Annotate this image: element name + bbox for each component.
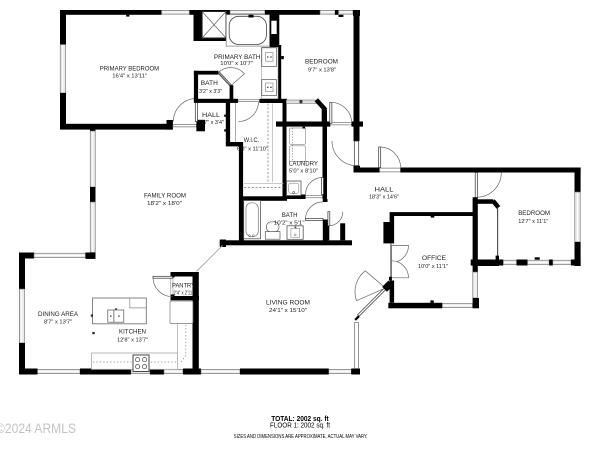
svg-text:BATH: BATH bbox=[201, 80, 218, 87]
svg-text:PRIMARY BATH: PRIMARY BATH bbox=[214, 54, 261, 61]
svg-text:FLOOR 1: 2002 sq. ft: FLOOR 1: 2002 sq. ft bbox=[270, 423, 330, 430]
svg-text:HALL: HALL bbox=[202, 112, 220, 119]
svg-text:9'7" x 13'8": 9'7" x 13'8" bbox=[308, 68, 336, 74]
svg-text:LAUNDRY: LAUNDRY bbox=[289, 160, 319, 167]
svg-text:8'7" x 13'7": 8'7" x 13'7" bbox=[44, 320, 72, 326]
svg-text:KITCHEN: KITCHEN bbox=[119, 329, 146, 336]
svg-text:3'2" x 3'3": 3'2" x 3'3" bbox=[199, 89, 222, 95]
svg-text:18'2" x 18'0": 18'2" x 18'0" bbox=[147, 201, 182, 207]
svg-text:5'0" x 8'10": 5'0" x 8'10" bbox=[289, 168, 318, 174]
svg-text:FAMILY ROOM: FAMILY ROOM bbox=[144, 193, 186, 200]
svg-text:OFFICE: OFFICE bbox=[422, 255, 447, 262]
svg-text:16'4" x 13'11": 16'4" x 13'11" bbox=[112, 73, 147, 79]
svg-text:18'3" x 14'6": 18'3" x 14'6" bbox=[369, 195, 399, 201]
svg-text:PANTRY: PANTRY bbox=[172, 283, 196, 290]
svg-text:BATH: BATH bbox=[282, 212, 298, 219]
svg-text:24'1" x 15'10": 24'1" x 15'10" bbox=[269, 308, 307, 314]
svg-text:W.I.C.: W.I.C. bbox=[244, 137, 260, 144]
svg-text:BEDROOM: BEDROOM bbox=[518, 210, 550, 217]
svg-text:3'7" x 3'4": 3'7" x 3'4" bbox=[200, 120, 224, 126]
svg-text:6'0" x 11'10": 6'0" x 11'10" bbox=[237, 147, 268, 153]
svg-text:12'8" x 13'7": 12'8" x 13'7" bbox=[117, 338, 148, 344]
svg-text:BEDROOM: BEDROOM bbox=[305, 59, 338, 66]
svg-text:PRIMARY BEDROOM: PRIMARY BEDROOM bbox=[100, 66, 159, 73]
svg-text:©2024 ARMLS: ©2024 ARMLS bbox=[0, 420, 76, 436]
svg-text:2'4" x 2'11": 2'4" x 2'11" bbox=[173, 291, 193, 297]
svg-text:12'7" x 11'1": 12'7" x 11'1" bbox=[518, 219, 548, 225]
svg-text:SIZES AND DIMENSIONS ARE APPRO: SIZES AND DIMENSIONS ARE APPROXIMATE, AC… bbox=[234, 434, 368, 440]
svg-text:10'0" x 10'7": 10'0" x 10'7" bbox=[220, 61, 253, 67]
svg-text:DINING AREA: DINING AREA bbox=[38, 311, 79, 318]
svg-text:10'2" x 5'1": 10'2" x 5'1" bbox=[274, 220, 305, 226]
svg-text:HALL: HALL bbox=[375, 187, 394, 194]
svg-text:LIVING ROOM: LIVING ROOM bbox=[266, 300, 310, 307]
svg-text:10'0" x 11'1": 10'0" x 11'1" bbox=[418, 264, 448, 270]
